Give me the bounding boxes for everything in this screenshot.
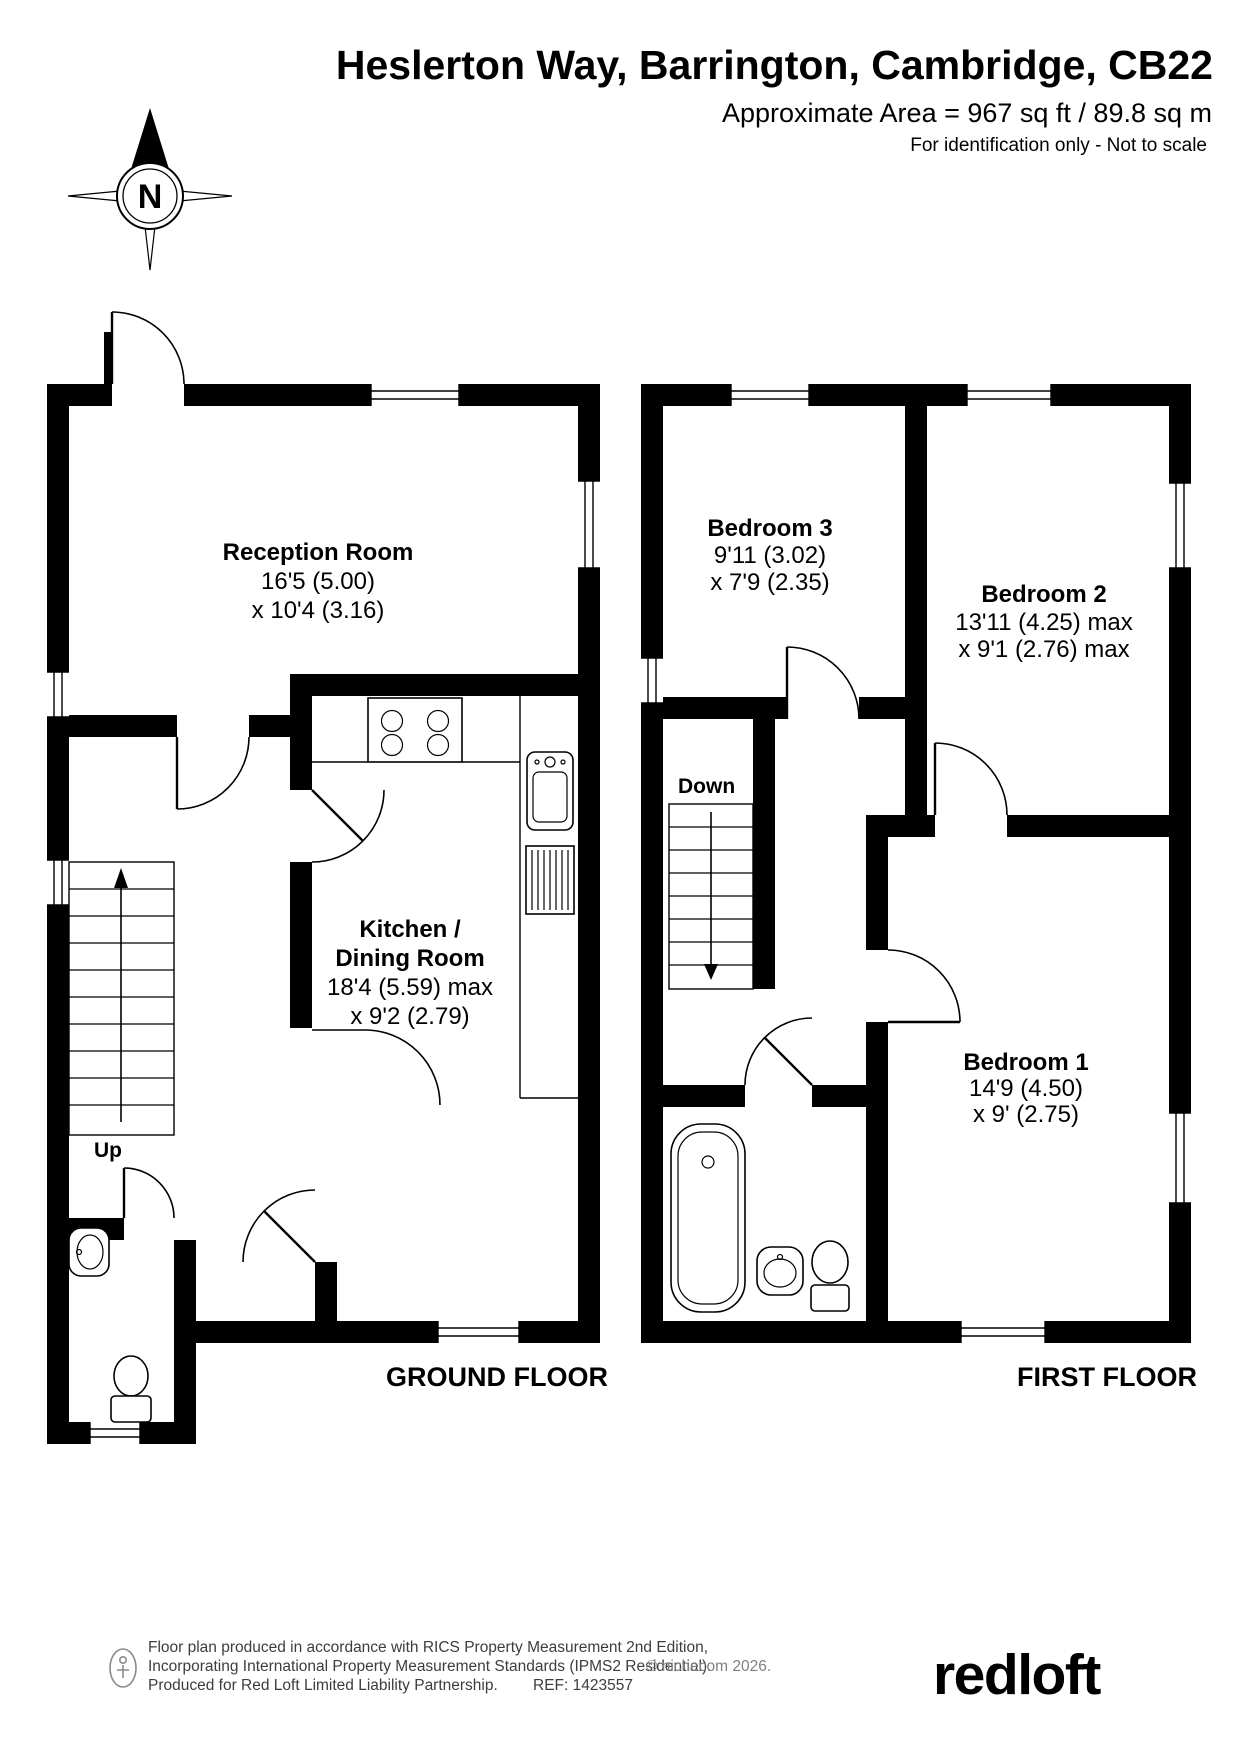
room-dim: 16'5 (5.00) [261, 568, 375, 595]
wall [315, 1262, 337, 1321]
room-dim: 9'11 (3.02) [714, 542, 826, 569]
hob-icon [368, 698, 462, 762]
wall [905, 406, 927, 837]
window [1169, 483, 1191, 568]
wall [641, 384, 663, 1343]
window [967, 384, 1051, 406]
compass-rose: N [68, 108, 232, 270]
up-arrowhead-icon [114, 868, 128, 888]
approximate-area: Approximate Area = 967 sq ft / 89.8 sq m [722, 98, 1212, 128]
ground-floor-plan: Reception Room 16'5 (5.00) x 10'4 (3.16)… [47, 312, 608, 1444]
window [961, 1321, 1045, 1343]
footer-line1: Floor plan produced in accordance with R… [148, 1639, 708, 1656]
page-title: Heslerton Way, Barrington, Cambridge, CB… [336, 42, 1213, 88]
toilet-icon [811, 1241, 849, 1311]
door-opening [787, 697, 859, 719]
wall [641, 1321, 1191, 1343]
room-dim: 14'9 (4.50) [969, 1075, 1083, 1102]
basin-icon [69, 1228, 109, 1276]
sink-icon [527, 752, 573, 830]
wall [196, 1321, 600, 1343]
wall [641, 384, 1191, 406]
room-dim: x 10'4 (3.16) [252, 597, 385, 624]
footer-copyright: © nichecom 2026. [646, 1658, 771, 1675]
door-opening [866, 950, 888, 1022]
footer-line3: Produced for Red Loft Limited Liability … [148, 1677, 498, 1694]
door-opening [112, 384, 184, 406]
door-arc [312, 1030, 440, 1105]
wall [753, 719, 775, 989]
door-arc [177, 737, 249, 809]
window [641, 658, 663, 703]
redloft-logo: redloft [933, 1643, 1101, 1707]
wall [866, 815, 1191, 837]
room-label-kitchen-2: Dining Room [335, 945, 484, 972]
floorplan-page: Heslerton Way, Barrington, Cambridge, CB… [0, 0, 1241, 1755]
first-floor-plan: Bedroom 3 9'11 (3.02) x 7'9 (2.35) Bedro… [641, 384, 1197, 1392]
door-arc [888, 950, 960, 1022]
room-dim: x 9' (2.75) [973, 1101, 1079, 1128]
room-dim: x 9'1 (2.76) max [958, 636, 1129, 663]
entrance-door-arc [112, 312, 184, 384]
basin-icon [757, 1247, 803, 1295]
first-floor-label: FIRST FLOOR [1017, 1362, 1197, 1392]
bath-icon [671, 1124, 745, 1312]
door-opening [745, 1085, 812, 1107]
window [438, 1321, 519, 1343]
window [578, 481, 600, 568]
window [731, 384, 809, 406]
door-arc [243, 1190, 315, 1262]
ground-floor-label: GROUND FLOOR [386, 1362, 608, 1392]
wall [174, 1240, 196, 1422]
room-dim: 18'4 (5.59) max [327, 974, 493, 1001]
door-opening [177, 715, 249, 737]
door-opening [935, 815, 1007, 837]
up-label: Up [94, 1139, 122, 1162]
down-label: Down [678, 775, 735, 798]
room-label-kitchen: Kitchen / [359, 916, 461, 943]
window [90, 1422, 140, 1444]
room-dim: x 9'2 (2.79) [350, 1003, 469, 1030]
stairs-up [69, 862, 174, 1135]
door-arc [312, 790, 384, 862]
down-arrowhead-icon [704, 964, 718, 980]
compass-north-label: N [138, 178, 163, 216]
wall [866, 837, 888, 1343]
nichecom-icon [110, 1649, 136, 1687]
footer: Floor plan produced in accordance with R… [110, 1639, 1101, 1707]
wall [47, 384, 69, 1444]
room-label-reception: Reception Room [223, 539, 414, 566]
window [1169, 1113, 1191, 1203]
window [47, 672, 69, 717]
room-label-bedroom1: Bedroom 1 [963, 1049, 1088, 1076]
floorplan-canvas: Heslerton Way, Barrington, Cambridge, CB… [0, 0, 1241, 1755]
window [371, 384, 459, 406]
room-label-bedroom2: Bedroom 2 [981, 581, 1106, 608]
drainer-icon [526, 846, 574, 914]
toilet-icon [111, 1356, 151, 1422]
room-dim: x 7'9 (2.35) [710, 569, 829, 596]
window [47, 860, 69, 905]
header: Heslerton Way, Barrington, Cambridge, CB… [336, 42, 1213, 156]
footer-line2: Incorporating International Property Mea… [148, 1658, 711, 1675]
stairs-down [669, 804, 753, 989]
door-opening [290, 790, 312, 862]
wall [312, 674, 600, 696]
disclaimer: For identification only - Not to scale [910, 135, 1207, 156]
room-dim: 13'11 (4.25) max [955, 609, 1133, 636]
door-arc [124, 1168, 174, 1218]
footer-ref: REF: 1423557 [533, 1677, 633, 1694]
room-label-bedroom3: Bedroom 3 [707, 515, 832, 542]
door-arc [745, 1018, 812, 1085]
door-arc [935, 743, 1007, 815]
